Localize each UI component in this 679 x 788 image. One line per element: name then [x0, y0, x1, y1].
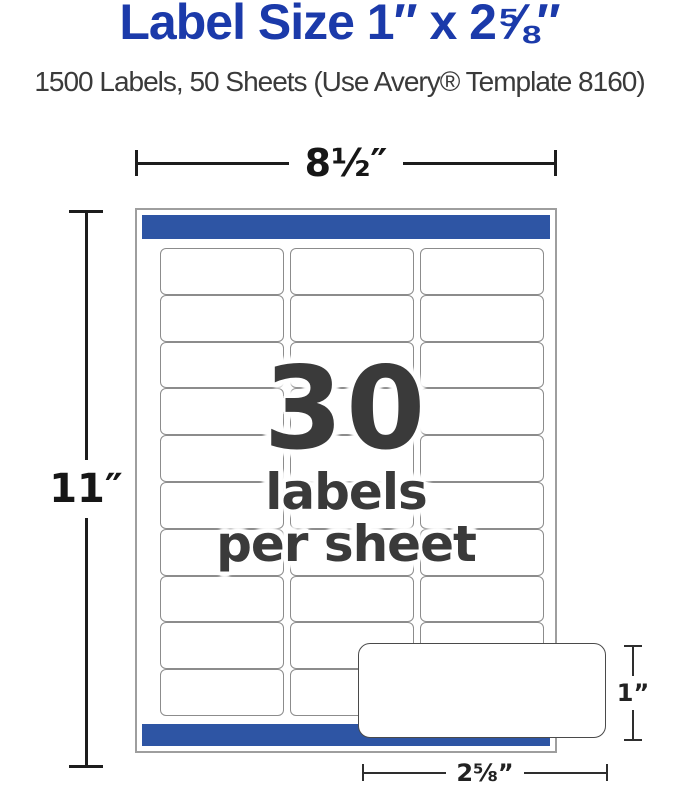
dimension-tick-icon: [624, 739, 642, 741]
sheet-height-label: 11″: [49, 466, 123, 512]
dimension-line: [632, 710, 634, 739]
top-margin-bar: [142, 215, 550, 239]
dimension-tick-icon: [69, 765, 103, 768]
dimension-line: [403, 162, 554, 165]
label-cell: [420, 248, 544, 295]
product-diagram: Label Size 1″ x 2⅝″ 1500 Labels, 50 Shee…: [0, 0, 679, 788]
label-cell: [290, 295, 414, 342]
dimension-line: [632, 647, 634, 676]
label-cell: [160, 576, 284, 623]
dimension-line: [524, 772, 606, 774]
caption-line-2: per sheet: [135, 518, 557, 570]
page-title: Label Size 1″ x 2⅝″: [0, 0, 679, 52]
dimension-tick-icon: [554, 150, 557, 176]
label-cell: [420, 576, 544, 623]
sheet-width-dimension: 8½″: [135, 141, 557, 185]
label-cell: [160, 669, 284, 716]
label-cell: [290, 248, 414, 295]
sheet-width-label: 8½″: [289, 141, 404, 185]
label-cell: [420, 295, 544, 342]
callout-width-label: 2⅝”: [446, 759, 523, 787]
dimension-line: [364, 772, 446, 774]
sheet-height-dimension: 11″: [48, 210, 124, 768]
callout-width-dimension: 2⅝”: [362, 764, 608, 781]
label-cell: [160, 295, 284, 342]
dimension-tick-icon: [606, 764, 608, 781]
caption-line-1: labels: [135, 466, 557, 518]
callout-height-label: 1”: [617, 679, 649, 707]
dimension-line: [85, 518, 88, 765]
page-subtitle: 1500 Labels, 50 Sheets (Use Avery® Templ…: [0, 66, 679, 98]
labels-count: 30: [135, 352, 557, 466]
dimension-line: [85, 213, 88, 460]
label-cell: [160, 248, 284, 295]
callout-label: [358, 643, 606, 738]
label-cell: [290, 576, 414, 623]
labels-per-sheet-caption: 30 labels per sheet: [135, 352, 557, 570]
dimension-line: [138, 162, 289, 165]
label-cell: [160, 622, 284, 669]
callout-height-dimension: 1”: [624, 645, 642, 741]
